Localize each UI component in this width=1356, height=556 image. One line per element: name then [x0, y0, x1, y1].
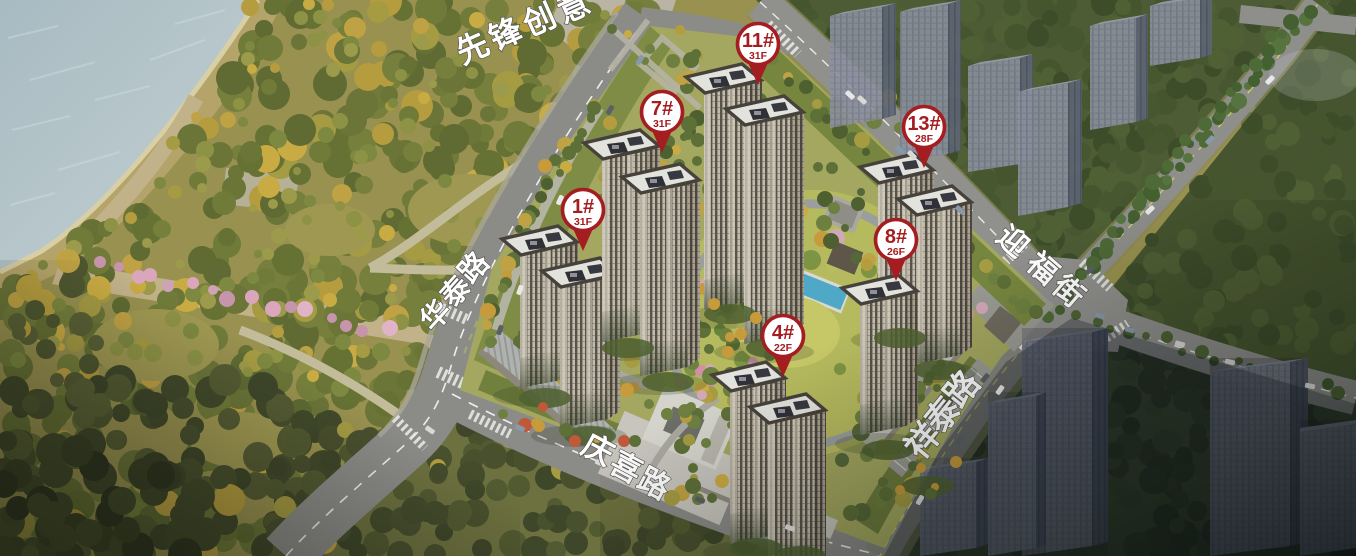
svg-text:1#: 1# — [572, 196, 594, 218]
svg-text:28F: 28F — [915, 133, 934, 145]
svg-text:7#: 7# — [651, 98, 673, 120]
svg-text:13#: 13# — [907, 113, 940, 135]
svg-text:11#: 11# — [742, 30, 774, 52]
svg-text:31F: 31F — [749, 50, 768, 62]
svg-text:31F: 31F — [653, 118, 672, 130]
svg-text:31F: 31F — [574, 216, 593, 228]
